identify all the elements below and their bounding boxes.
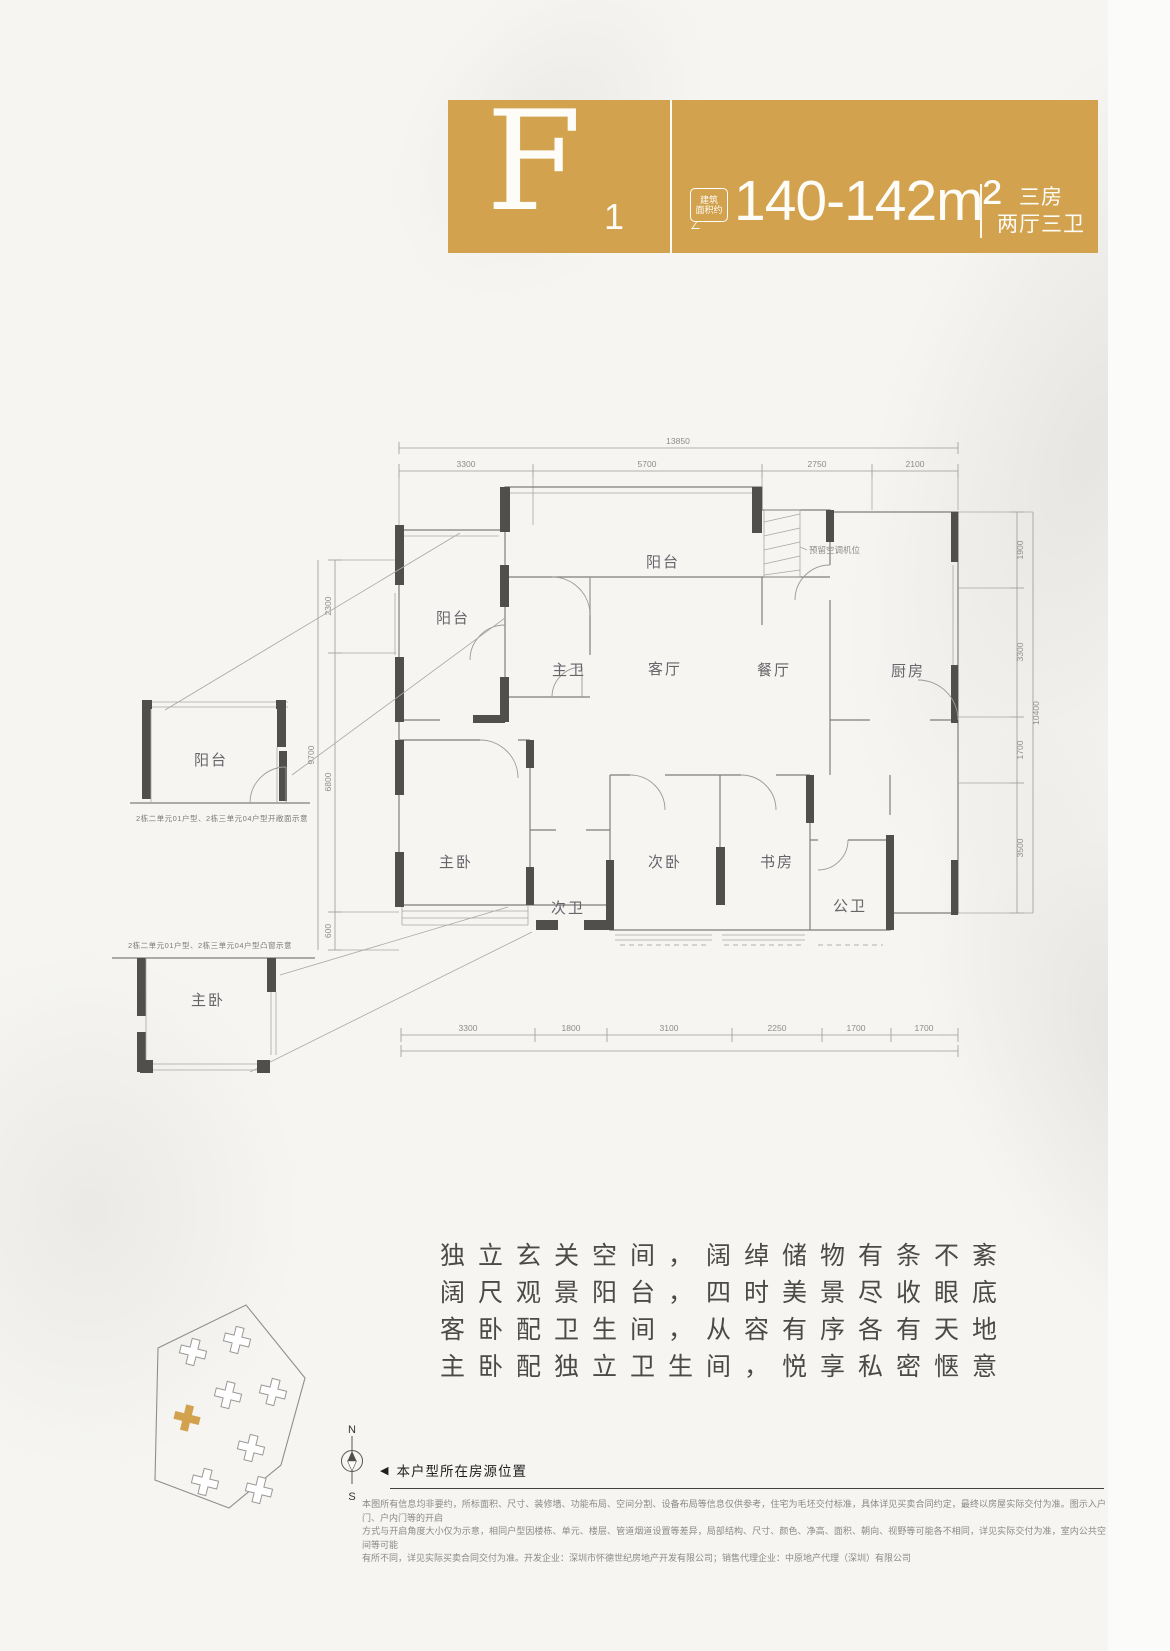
selling-point-1: 独立玄关空间，阔绰储物有条不紊 bbox=[440, 1238, 1010, 1275]
room-second-bath: 次卫 bbox=[551, 900, 585, 917]
dim-left-2: 6800 bbox=[323, 772, 333, 791]
dimension-bottom: 3300 1800 3100 2250 1700 1700 bbox=[401, 1023, 958, 1057]
disclaimer-line-1: 本图所有信息均非要约，所标面积、尺寸、装修墙、功能布局、空间分割、设备布局等信息… bbox=[362, 1498, 1106, 1525]
disclaimer-line-3: 有所不同，详见实际买卖合同交付为准。开发企业：深圳市怀德世纪房地产开发有限公司；… bbox=[362, 1552, 1106, 1566]
spec-rooms: 三房 bbox=[993, 184, 1089, 211]
room-labels: 阳台 阳台 主卫 客厅 餐厅 厨房 主卧 次卫 次卧 书房 公卫 bbox=[436, 554, 925, 917]
dim-bottom-4: 2250 bbox=[768, 1023, 787, 1033]
room-study: 书房 bbox=[760, 854, 794, 871]
location-caption: ◀ 本户型所在房源位置 bbox=[380, 1460, 527, 1480]
unit-header-banner: F 1 建筑 面积约 140-142m² 三房 两厅三卫 bbox=[448, 100, 1098, 253]
detail-baywindow: 2栋二单元01户型、2栋三单元04户型凸窗示意 主卧 bbox=[112, 940, 315, 1073]
dimension-top: 13850 3300 5700 2750 2100 bbox=[399, 436, 958, 527]
area-badge: 建筑 面积约 bbox=[690, 188, 728, 222]
room-balcony-top: 阳台 bbox=[646, 554, 680, 571]
room-balcony-left: 阳台 bbox=[436, 610, 470, 627]
site-plan bbox=[133, 1300, 318, 1525]
detail-balcony-room: 阳台 bbox=[194, 752, 228, 769]
room-kitchen: 厨房 bbox=[891, 663, 925, 680]
disclaimer-line-2: 方式与开启角度大小仅为示意，相同户型因楼栋、单元、楼层、管道烟道设置等差异，局部… bbox=[362, 1525, 1106, 1552]
unit-type-number: 1 bbox=[604, 196, 624, 238]
detail-balcony-caption: 2栋二单元01户型、2栋三单元04户型开敞面示意 bbox=[136, 813, 308, 823]
dim-right-1: 1900 bbox=[1015, 540, 1025, 559]
dimension-left: 2300 6800 600 9700 bbox=[306, 560, 399, 950]
dimension-right: 1900 3300 1700 3500 10400 bbox=[958, 512, 1041, 913]
area-value: 140-142m² bbox=[734, 168, 1001, 234]
detail-baywindow-room: 主卧 bbox=[191, 992, 225, 1009]
room-living: 客厅 bbox=[648, 661, 682, 678]
dim-top-total: 13850 bbox=[666, 436, 690, 446]
room-master-bed: 主卧 bbox=[439, 854, 473, 871]
room-dining: 餐厅 bbox=[757, 662, 791, 679]
area-badge-line1: 建筑 bbox=[700, 195, 718, 205]
ac-note-label: 预留空调机位 bbox=[809, 545, 861, 555]
highlighted-building bbox=[171, 1402, 203, 1434]
spec-halls-baths: 两厅三卫 bbox=[993, 211, 1089, 238]
dim-bottom-2: 1800 bbox=[562, 1023, 581, 1033]
unit-type-letter: F bbox=[486, 86, 582, 238]
dim-left-3: 600 bbox=[323, 924, 333, 938]
disclaimer: 本图所有信息均非要约，所标面积、尺寸、装修墙、功能布局、空间分割、设备布局等信息… bbox=[362, 1498, 1106, 1566]
page-edge bbox=[1108, 0, 1170, 1651]
compass-needle-icon bbox=[334, 1436, 370, 1486]
detail-baywindow-caption: 2栋二单元01户型、2栋三单元04户型凸窗示意 bbox=[128, 940, 292, 950]
selling-point-2: 阔尺观景阳台，四时美景尽收眼底 bbox=[440, 1275, 1010, 1312]
selling-point-4: 主卧配独立卫生间，悦享私密惬意 bbox=[440, 1349, 1010, 1386]
dim-right-3: 1700 bbox=[1015, 740, 1025, 759]
header-divider-2 bbox=[980, 184, 982, 238]
dim-left-total: 9700 bbox=[306, 745, 316, 764]
room-public-bath: 公卫 bbox=[833, 898, 867, 915]
detail-balcony: 阳台 2栋二单元01户型、2栋三单元04户型开敞面示意 bbox=[130, 700, 310, 823]
dim-top-1: 3300 bbox=[457, 459, 476, 469]
room-second-bed: 次卧 bbox=[648, 854, 682, 871]
room-master-bath: 主卫 bbox=[552, 662, 586, 679]
area-badge-tail bbox=[691, 221, 705, 229]
dim-bottom-6: 1700 bbox=[915, 1023, 934, 1033]
dim-top-2: 5700 bbox=[638, 459, 657, 469]
dim-top-3: 2750 bbox=[808, 459, 827, 469]
dim-bottom-5: 1700 bbox=[847, 1023, 866, 1033]
selling-point-3: 客卧配卫生间，从容有序各有天地 bbox=[440, 1312, 1010, 1349]
ac-platform: 预留空调机位 bbox=[764, 510, 861, 577]
dim-top-4: 2100 bbox=[906, 459, 925, 469]
header-divider bbox=[670, 100, 672, 253]
dim-right-4: 3500 bbox=[1015, 838, 1025, 857]
layout-spec: 三房 两厅三卫 bbox=[993, 184, 1089, 238]
footer-divider bbox=[390, 1488, 1104, 1489]
location-caption-text: 本户型所在房源位置 bbox=[396, 1460, 527, 1480]
area-badge-line2: 面积约 bbox=[695, 205, 722, 215]
left-triangle-icon: ◀ bbox=[380, 1464, 389, 1477]
compass-north-label: N bbox=[334, 1424, 370, 1436]
dim-right-total: 10400 bbox=[1031, 701, 1041, 725]
dim-right-2: 3300 bbox=[1015, 642, 1025, 661]
dim-bottom-1: 3300 bbox=[459, 1023, 478, 1033]
selling-points: 独立玄关空间，阔绰储物有条不紊 阔尺观景阳台，四时美景尽收眼底 客卧配卫生间，从… bbox=[440, 1238, 1010, 1386]
floor-plan: 13850 3300 5700 2750 2100 3300 1800 3100… bbox=[100, 415, 1060, 1085]
compass: N S bbox=[334, 1424, 370, 1503]
dim-bottom-3: 3100 bbox=[660, 1023, 679, 1033]
